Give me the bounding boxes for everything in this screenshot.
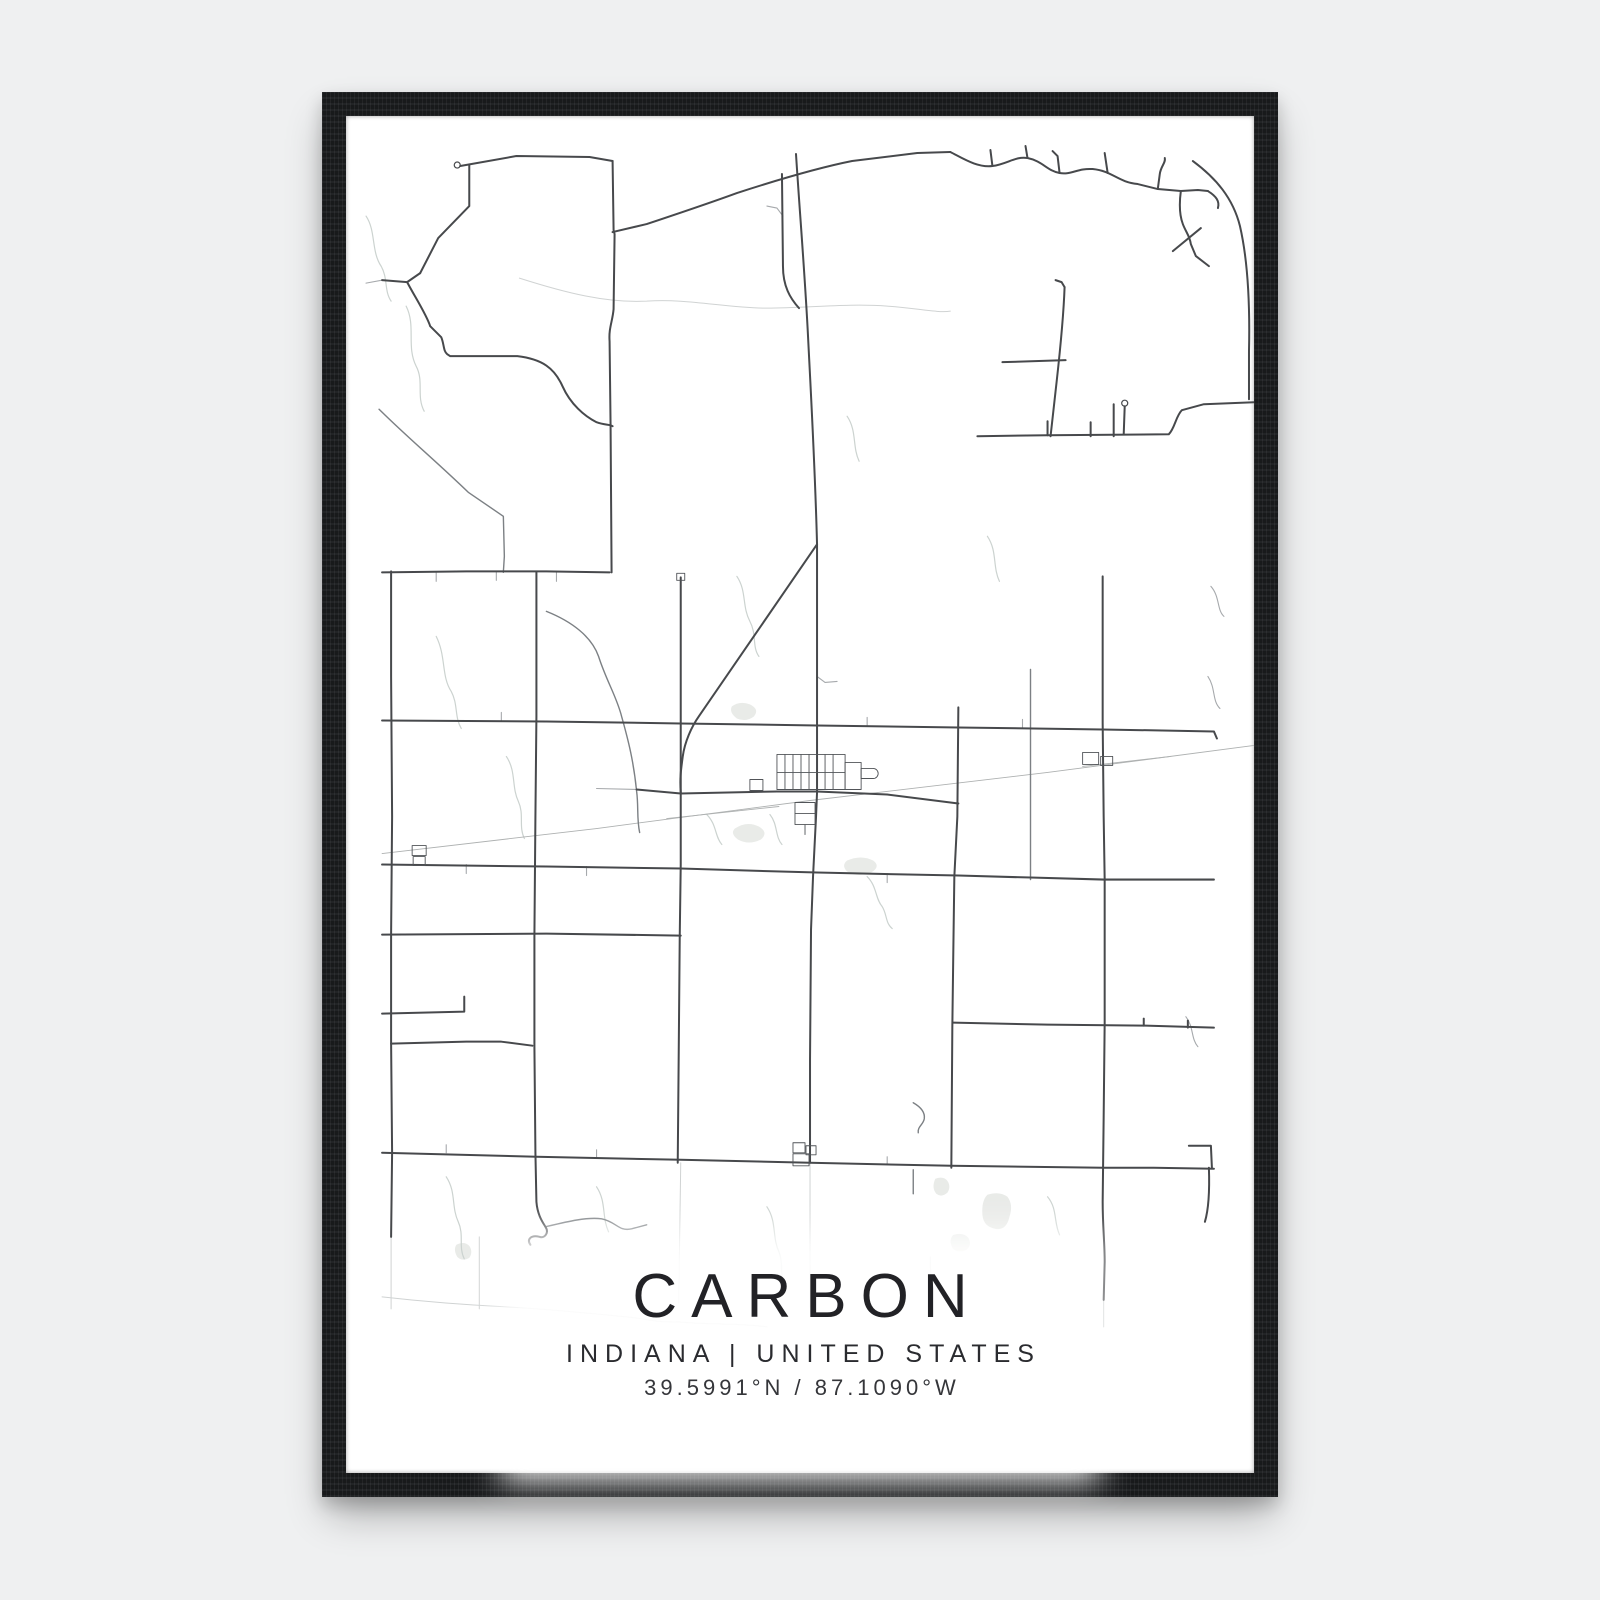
map-path-r1	[1103, 576, 1105, 1300]
map-path-wtr	[987, 536, 999, 581]
map-path-r1	[810, 544, 817, 1162]
map-path-r1	[382, 273, 420, 282]
map-path-lake	[934, 1178, 950, 1196]
map-path-wtr	[436, 636, 461, 728]
map-path-lake	[733, 824, 765, 843]
map-path-r1	[1205, 1168, 1209, 1222]
map-path-r3	[1211, 586, 1224, 616]
map-path-r1	[1189, 1146, 1212, 1168]
map-path-wtr	[366, 216, 391, 301]
map-path-wtr	[867, 877, 892, 929]
map-path-r1	[460, 156, 612, 166]
map-path-r1	[950, 152, 1208, 191]
map-path-r1	[1193, 161, 1249, 399]
map-path-r1	[637, 789, 959, 803]
map-path-rail	[1083, 756, 1171, 766]
map-path-bld	[861, 768, 878, 778]
map-path-r1	[382, 571, 610, 572]
map-path-r1	[382, 934, 681, 936]
map-path-r1	[1051, 287, 1065, 436]
map-path-wtr	[707, 815, 722, 845]
map-path-r1	[796, 154, 817, 544]
map-path-wtr	[446, 1177, 464, 1259]
map-path-r1	[1053, 151, 1060, 173]
map-path-r1	[382, 1153, 1214, 1169]
map-path-r1	[951, 707, 958, 1167]
map-path-bld	[412, 846, 426, 856]
map-path-r1	[1180, 191, 1209, 266]
poster-subtitle: INDIANA | UNITED STATES	[346, 1342, 1254, 1367]
map-path-r1	[420, 165, 469, 273]
map-path-r1	[391, 571, 392, 1236]
map-path-r1	[407, 282, 612, 426]
map-path-r1	[977, 402, 1254, 436]
map-path-r1	[1105, 153, 1108, 173]
map-path-r1	[1025, 146, 1027, 158]
map-path-lake	[982, 1193, 1011, 1229]
map-path-wtr	[597, 1187, 609, 1232]
map-path-r3	[817, 676, 837, 682]
map-path-r1	[680, 544, 817, 792]
cul-de-sac-circle	[454, 162, 460, 168]
map-poster: CARBON INDIANA | UNITED STATES 39.5991°N…	[346, 116, 1254, 1473]
map-path-bld	[1083, 752, 1099, 764]
map-path-r1	[382, 997, 464, 1014]
map-path-r1	[678, 577, 681, 1162]
map-path-r3	[597, 788, 637, 789]
map-path-wtr	[506, 756, 524, 838]
map-path-r4	[519, 278, 950, 311]
map-path-r1	[1124, 406, 1125, 434]
map-path-r1	[382, 720, 1217, 738]
poster-title: CARBON	[346, 1266, 1254, 1328]
map-path-r1	[990, 150, 992, 166]
map-path-lake	[731, 703, 756, 720]
map-path-bld	[793, 1154, 809, 1166]
map-path-bld	[750, 779, 763, 790]
map-path-wtr	[1048, 1197, 1060, 1235]
map-path-rail	[667, 807, 779, 819]
map-path-r1	[1002, 360, 1065, 362]
map-path-bld	[793, 1143, 805, 1153]
map-path-r2	[545, 1218, 646, 1229]
map-path-r1	[1056, 280, 1065, 287]
map-path-r3	[767, 206, 783, 216]
page-background: CARBON INDIANA | UNITED STATES 39.5991°N…	[0, 0, 1600, 1600]
map-path-r1	[782, 174, 799, 308]
map-path-wtr	[406, 306, 424, 411]
map-path-r2	[913, 1103, 924, 1133]
map-path-r1	[609, 161, 614, 572]
map-path-bld	[845, 762, 861, 789]
map-path-bld	[777, 754, 845, 789]
map-path-r2	[379, 409, 504, 572]
poster-coordinates: 39.5991°N / 87.1090°W	[346, 1377, 1254, 1399]
map-path-r3	[366, 280, 382, 283]
map-path-r1	[529, 572, 547, 1244]
map-path-wtr	[770, 815, 782, 845]
poster-frame: CARBON INDIANA | UNITED STATES 39.5991°N…	[322, 92, 1278, 1497]
map-path-r1	[953, 1023, 1214, 1028]
map-path-r1	[391, 1042, 532, 1046]
map-path-wtr	[847, 416, 859, 461]
map-path-r1	[382, 865, 1214, 880]
map-path-r1	[1208, 191, 1219, 208]
map-path-r3	[1208, 676, 1220, 708]
map-path-r1	[1158, 158, 1165, 189]
